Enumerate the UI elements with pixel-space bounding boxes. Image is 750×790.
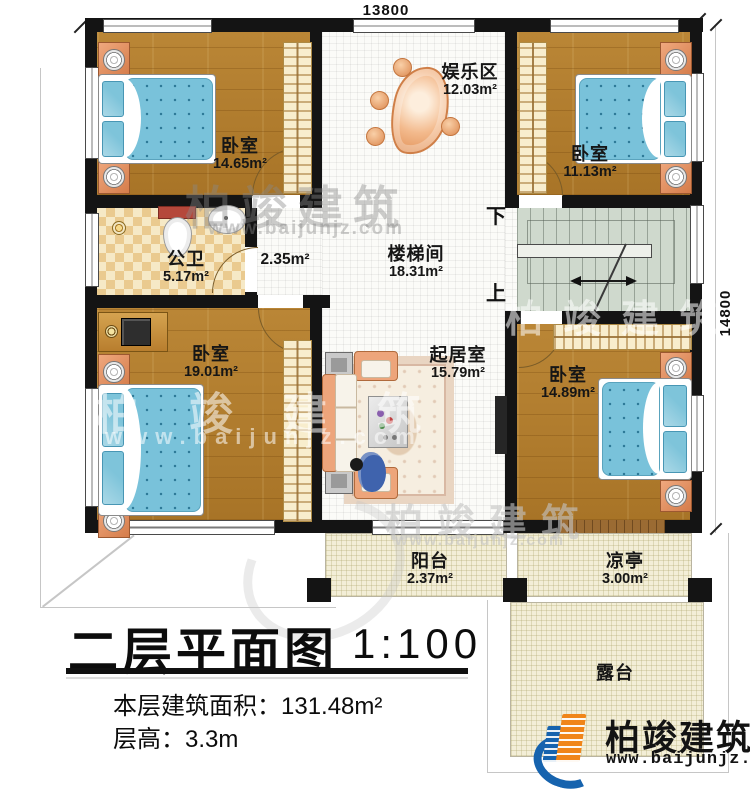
stool xyxy=(441,117,460,136)
floor-height-line: 层高：3.3m xyxy=(113,719,238,754)
room-label-living: 起居室 15.79m² xyxy=(413,345,503,381)
desk-lamp xyxy=(105,325,118,338)
roof-diagonal-line xyxy=(42,535,134,608)
nightstand xyxy=(98,159,130,194)
window-right-bedroom4 xyxy=(690,395,704,472)
door-gap-bedroom2 xyxy=(519,195,562,208)
watermark-brand: 柏竣建筑 xyxy=(505,288,737,343)
dim-tick-right-top xyxy=(710,19,723,32)
room-area: 5.17m² xyxy=(141,269,231,285)
logo-url-text: www.baijunjz.com xyxy=(606,750,750,769)
armchair-cushion xyxy=(361,360,391,378)
window-top-bedroom1 xyxy=(103,19,212,33)
room-name: 娱乐区 xyxy=(425,62,515,82)
desk-tv xyxy=(121,318,151,346)
stairs-arrow-right xyxy=(626,276,637,286)
room-label-stairwell: 楼梯间 18.31m² xyxy=(371,244,461,280)
room-area: 18.31m² xyxy=(371,264,461,280)
boundary-right xyxy=(715,26,716,533)
floor-height-value: 3.3m xyxy=(185,726,238,753)
room-area: 19.01m² xyxy=(166,364,256,380)
nightstand xyxy=(660,159,692,194)
stairs-down-label: 下 xyxy=(486,200,506,229)
room-name: 卧室 xyxy=(523,365,613,385)
person-figure xyxy=(358,452,386,492)
wardrobe xyxy=(519,42,547,194)
brand-logo: 柏竣建筑 www.baijunjz.com xyxy=(533,710,748,780)
stairs-handrail xyxy=(517,244,652,258)
logo-icon xyxy=(533,712,601,778)
nightstand xyxy=(98,42,130,77)
room-name: 露台 xyxy=(570,663,660,683)
dim-width-label: 13800 xyxy=(340,2,432,19)
room-name: 楼梯间 xyxy=(371,244,461,264)
room-name: 凉亭 xyxy=(580,551,670,571)
bed-pillow xyxy=(102,81,124,117)
watermark-url: www.baijunjz.com xyxy=(208,218,404,240)
room-name: 卧室 xyxy=(545,144,635,164)
floor-area-value: 131.48m² xyxy=(281,693,382,720)
boundary-terrace-left xyxy=(487,600,488,773)
bed-pillow xyxy=(664,81,686,117)
room-name: 卧室 xyxy=(166,344,256,364)
title-underline xyxy=(66,668,468,674)
stool xyxy=(370,91,389,110)
room-name: 公卫 xyxy=(141,249,231,269)
room-name: 阳台 xyxy=(385,551,475,571)
door-gap-bedroom3 xyxy=(258,295,303,308)
room-name: 卧室 xyxy=(195,136,285,156)
window-right-bedroom2 xyxy=(690,73,704,162)
stairs-direction-line xyxy=(581,280,626,282)
room-label-corridor: 2.35m² xyxy=(240,251,330,268)
dim-tick-right-bottom xyxy=(710,523,723,536)
title-underline-shadow xyxy=(66,677,468,679)
column-balcony-pavilion xyxy=(503,578,527,602)
room-area: 3.00m² xyxy=(580,571,670,587)
room-area: 12.03m² xyxy=(425,82,515,98)
nightstand xyxy=(660,480,692,512)
person-head xyxy=(350,458,363,471)
bed-pillow xyxy=(102,121,124,157)
column-pavilion-right xyxy=(688,578,712,602)
room-label-bedroom-2: 卧室 11.13m² xyxy=(545,144,635,180)
bed-pillow xyxy=(102,451,124,505)
room-area: 2.37m² xyxy=(385,571,475,587)
floor-area-label: 本层建筑面积： xyxy=(113,693,281,720)
room-area: 14.89m² xyxy=(523,385,613,401)
watermark-url: www.baijunjz.com xyxy=(105,424,423,450)
boundary-left xyxy=(40,68,41,608)
window-right-stairs xyxy=(690,205,704,284)
room-area: 2.35m² xyxy=(240,251,330,268)
stairs-arrow-left xyxy=(570,276,581,286)
bed-pillow xyxy=(663,385,687,427)
floor-height-label: 层高： xyxy=(113,726,185,753)
window-top-entertainment xyxy=(353,19,475,33)
wall-entertainment-bedroom2 xyxy=(505,18,517,208)
room-name: 起居室 xyxy=(413,345,503,365)
plan-scale: 1:100 xyxy=(352,620,482,668)
room-label-balcony: 阳台 2.37m² xyxy=(385,551,475,587)
room-label-pavilion: 凉亭 3.00m² xyxy=(580,551,670,587)
room-area: 11.13m² xyxy=(545,164,635,180)
room-area: 14.65m² xyxy=(195,156,285,172)
light-fixture xyxy=(112,221,126,235)
armchair xyxy=(354,351,398,381)
room-label-bedroom-4: 卧室 14.89m² xyxy=(523,365,613,401)
room-label-bedroom-1: 卧室 14.65m² xyxy=(195,136,285,172)
room-label-entertainment: 娱乐区 12.03m² xyxy=(425,62,515,98)
room-area: 15.79m² xyxy=(413,365,503,381)
stool xyxy=(393,58,412,77)
room-label-terrace: 露台 xyxy=(570,663,660,683)
window-left-bedroom1 xyxy=(85,67,99,159)
floor-plan-canvas: 13800 14800 xyxy=(0,0,750,790)
window-bottom-bedroom3 xyxy=(125,520,275,535)
stairs-up-label: 上 xyxy=(486,277,506,306)
watermark-url: www.baijunjz.com xyxy=(395,532,565,550)
bed-pillow xyxy=(663,431,687,473)
room-label-bathroom: 公卫 5.17m² xyxy=(141,249,231,285)
window-top-bedroom2 xyxy=(550,19,679,33)
stool xyxy=(366,127,385,146)
room-label-bedroom-3: 卧室 19.01m² xyxy=(166,344,256,380)
dresser-desk xyxy=(98,312,168,352)
floor-area-line: 本层建筑面积：131.48m² xyxy=(113,686,382,721)
bed-pillow xyxy=(664,121,686,157)
tv xyxy=(495,396,507,454)
window-left-bathroom xyxy=(85,213,99,287)
nightstand xyxy=(660,42,692,77)
